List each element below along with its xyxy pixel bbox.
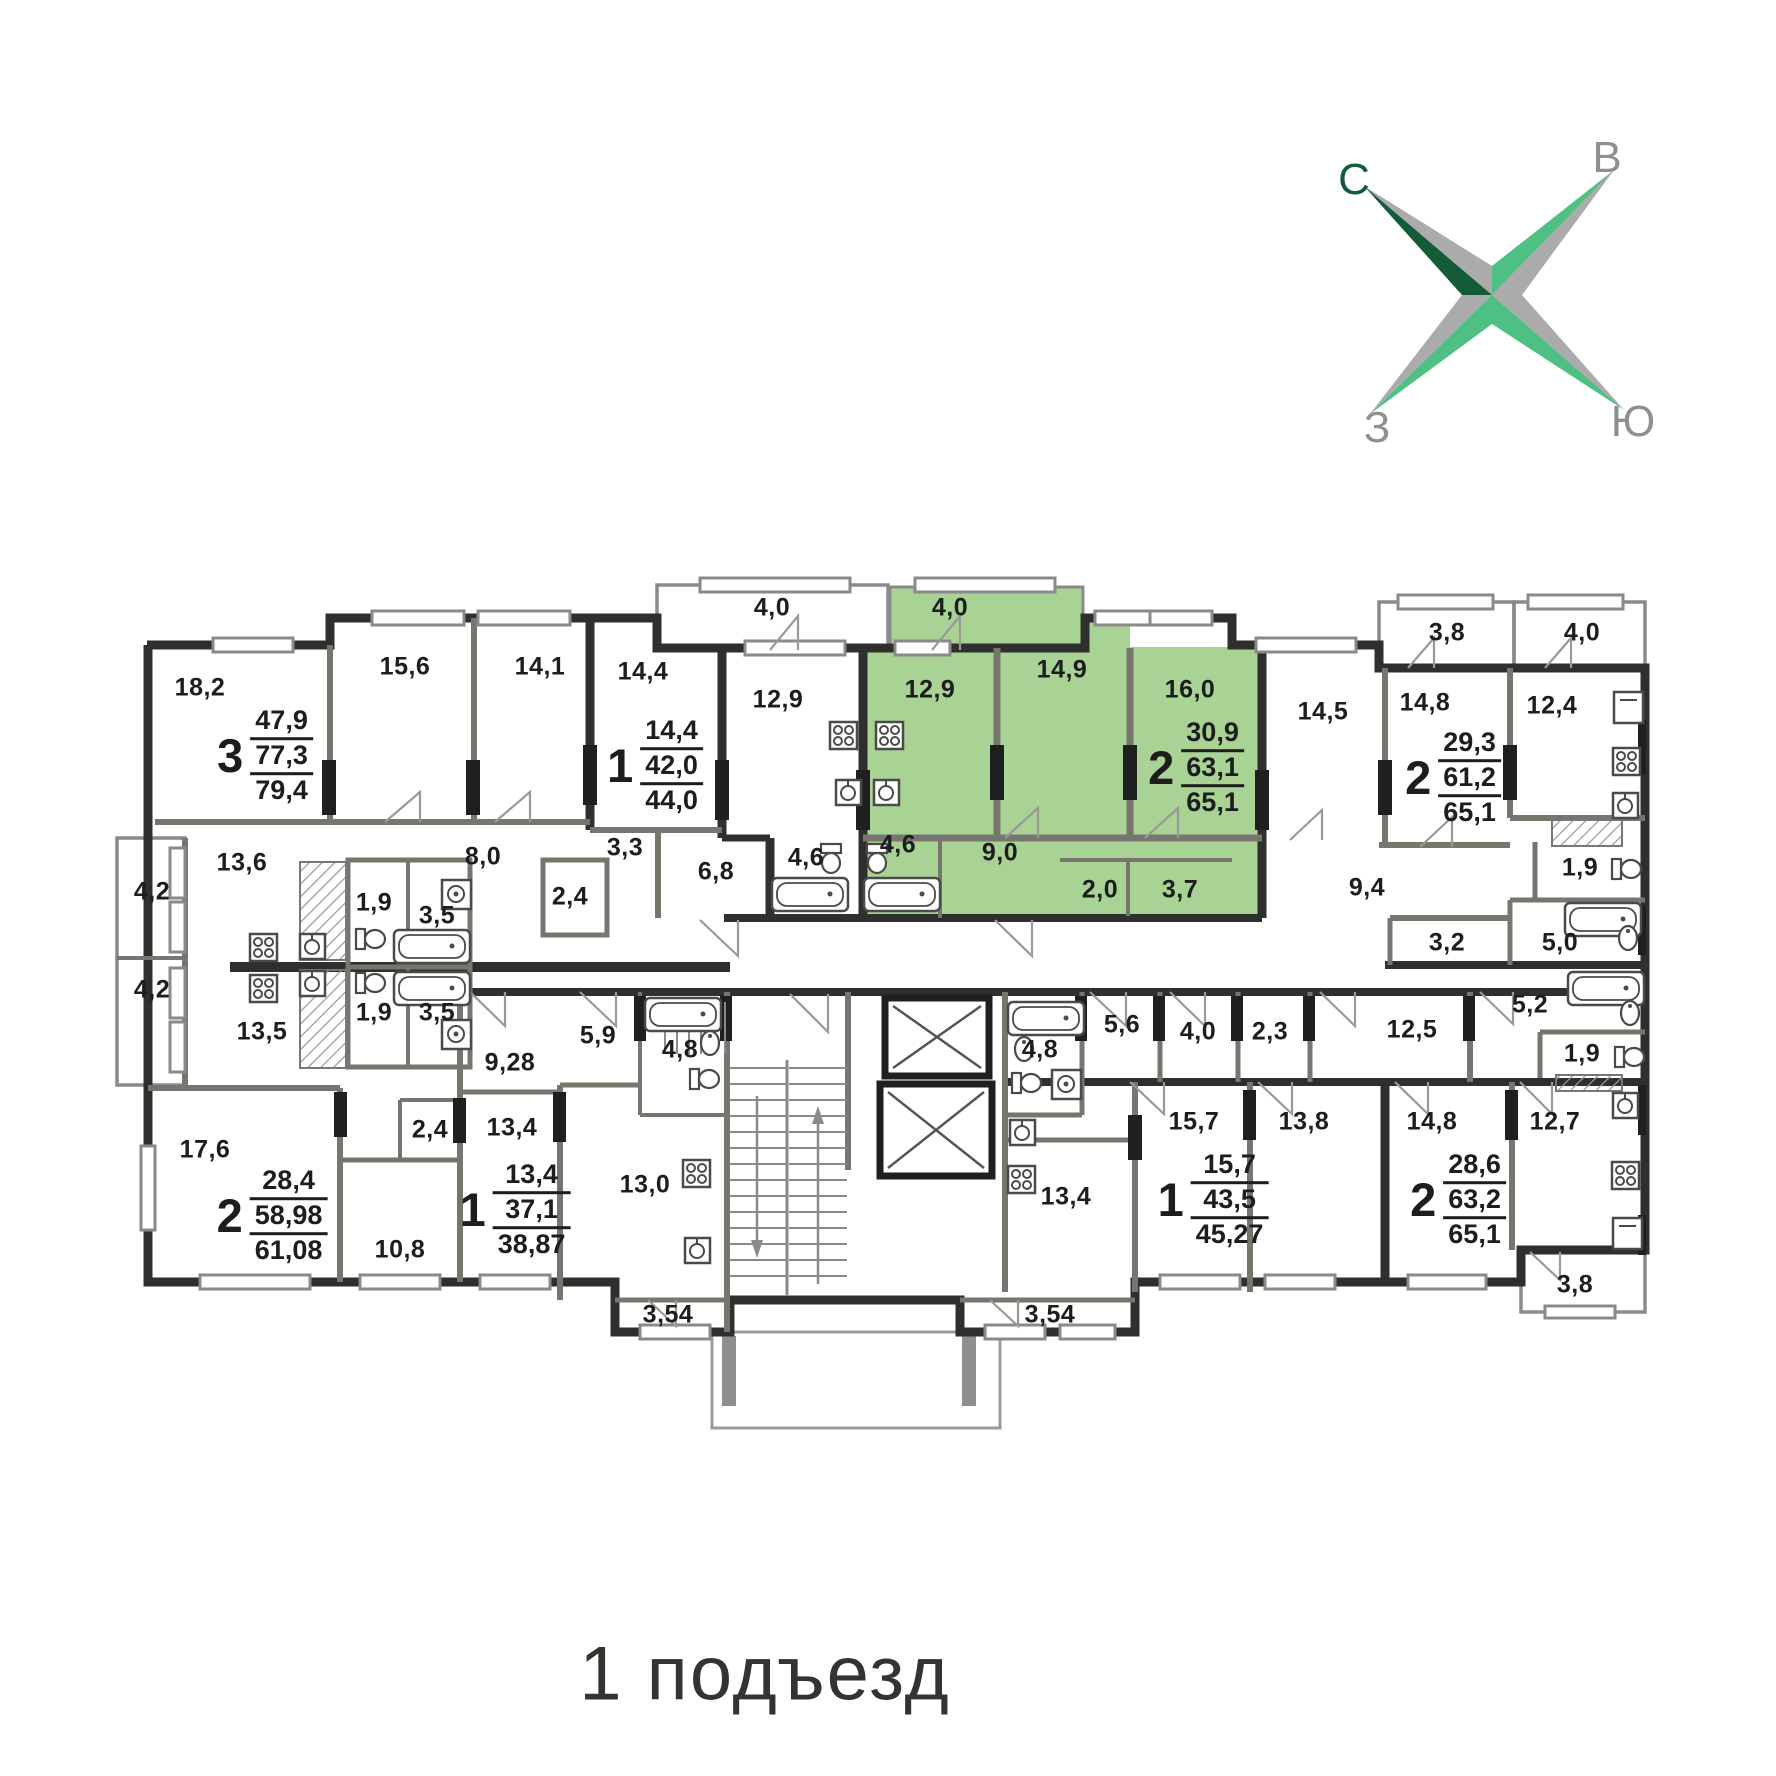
compass-east-label: В xyxy=(1592,133,1621,183)
living-area: 29,3 xyxy=(1438,727,1501,762)
room-area-label: 3,2 xyxy=(1429,929,1465,958)
apartment-area: 63,2 xyxy=(1443,1184,1506,1219)
apartment-summary: 1 13,437,138,87 xyxy=(460,1159,571,1261)
room-area-label: 14,8 xyxy=(1400,689,1451,718)
total-area: 44,0 xyxy=(640,785,703,817)
bathroom-sink-icon xyxy=(1621,1001,1639,1025)
room-area-label: 9,28 xyxy=(485,1049,536,1078)
room-area-label: 8,0 xyxy=(465,843,501,872)
room-area-label: 3,5 xyxy=(419,902,455,931)
total-area: 65,1 xyxy=(1438,797,1501,829)
room-area-label: 4,0 xyxy=(1180,1018,1216,1047)
stove-icon xyxy=(250,934,277,961)
apartment-summary: 2 28,458,9861,08 xyxy=(217,1165,328,1267)
entrance-porch xyxy=(712,1332,1000,1428)
room-area-label: 12,7 xyxy=(1530,1108,1581,1137)
room-area-label: 14,8 xyxy=(1407,1108,1458,1137)
sink-icon xyxy=(874,780,899,805)
bathtub-icon xyxy=(1008,1002,1084,1035)
room-area-label: 15,6 xyxy=(380,653,431,682)
toilet-icon xyxy=(356,929,385,949)
room-area-label: 14,5 xyxy=(1298,698,1349,727)
apartment-rooms-count: 2 xyxy=(217,1188,243,1243)
bathtub-icon xyxy=(1568,972,1644,1005)
apartment-summary: 1 15,743,545,27 xyxy=(1158,1149,1269,1251)
room-area-label: 4,2 xyxy=(134,878,170,907)
room-area-label: 4,6 xyxy=(880,831,916,860)
room-area-label: 12,4 xyxy=(1527,692,1578,721)
living-area: 13,4 xyxy=(493,1159,571,1194)
room-area-label: 14,1 xyxy=(515,653,566,682)
apartment-area: 61,2 xyxy=(1438,762,1501,797)
floor-plan-page: С В З Ю 18,2 15,6 14,1 14,4 4,0 12,9 4,0… xyxy=(0,0,1776,1776)
apartment-area: 42,0 xyxy=(640,750,703,785)
room-area-label: 2,0 xyxy=(1082,876,1118,905)
sink-icon xyxy=(300,934,325,959)
room-area-label: 13,5 xyxy=(237,1018,288,1047)
bathtub-icon xyxy=(394,930,470,963)
room-area-label: 3,3 xyxy=(607,834,643,863)
room-area-label: 1,9 xyxy=(356,889,392,918)
room-area-label: 5,9 xyxy=(580,1022,616,1051)
elevator-shafts xyxy=(880,998,992,1176)
room-area-label: 4,6 xyxy=(788,844,824,873)
sink-icon xyxy=(300,971,325,996)
room-area-label: 3,5 xyxy=(419,999,455,1028)
room-area-label: 4,8 xyxy=(1022,1036,1058,1065)
apartment-area: 63,1 xyxy=(1181,752,1244,787)
room-area-label: 14,4 xyxy=(618,658,669,687)
bathroom-sink-icon xyxy=(701,1031,719,1055)
total-area: 45,27 xyxy=(1191,1219,1269,1251)
bathroom-sink-icon xyxy=(1619,926,1637,950)
apartment-rooms-count: 2 xyxy=(1405,750,1431,805)
room-area-label: 3,8 xyxy=(1429,619,1465,648)
room-area-label: 4,0 xyxy=(1564,619,1600,648)
fridge-icon xyxy=(1613,1218,1642,1249)
room-area-label: 14,9 xyxy=(1037,656,1088,685)
apartment-area: 58,98 xyxy=(250,1200,328,1235)
stove-icon xyxy=(830,722,857,749)
room-area-label: 15,7 xyxy=(1169,1108,1220,1137)
room-area-label: 2,4 xyxy=(412,1116,448,1145)
room-area-label: 1,9 xyxy=(1562,854,1598,883)
fridge-icon xyxy=(1614,692,1643,723)
apartment-rooms-count: 3 xyxy=(217,728,243,783)
stove-icon xyxy=(250,975,277,1002)
room-area-label: 9,4 xyxy=(1349,874,1385,903)
stove-icon xyxy=(1612,1162,1639,1189)
room-area-label: 13,8 xyxy=(1279,1108,1330,1137)
compass-south-label: Ю xyxy=(1611,397,1655,447)
room-area-label: 12,5 xyxy=(1387,1016,1438,1045)
washer-icon xyxy=(1052,1070,1081,1099)
bathtub-icon xyxy=(772,878,848,911)
stove-icon xyxy=(683,1160,710,1187)
room-area-label: 2,3 xyxy=(1252,1018,1288,1047)
apartment-rooms-count: 1 xyxy=(607,738,633,793)
apartment-rooms-count: 1 xyxy=(1158,1172,1184,1227)
room-area-label: 3,54 xyxy=(1025,1301,1076,1330)
room-area-label: 3,8 xyxy=(1557,1271,1593,1300)
stove-icon xyxy=(1008,1166,1035,1193)
compass-north-label: С xyxy=(1338,155,1370,205)
living-area: 28,6 xyxy=(1443,1149,1506,1184)
living-area: 30,9 xyxy=(1181,717,1244,752)
compass-rose-icon xyxy=(1364,170,1624,414)
room-area-label: 5,0 xyxy=(1542,929,1578,958)
sink-icon xyxy=(1010,1120,1035,1145)
living-area: 15,7 xyxy=(1191,1149,1269,1184)
total-area: 65,1 xyxy=(1181,787,1244,819)
compass-west-label: З xyxy=(1364,403,1391,453)
room-area-label: 13,4 xyxy=(1041,1183,1092,1212)
apartment-summary: 3 47,977,379,4 xyxy=(217,705,313,807)
room-area-label: 16,0 xyxy=(1165,676,1216,705)
apartment-area: 37,1 xyxy=(493,1194,571,1229)
room-area-label: 3,7 xyxy=(1162,876,1198,905)
apartment-summary: 2 28,663,265,1 xyxy=(1410,1149,1506,1251)
bathtub-icon xyxy=(864,878,940,911)
bathtub-icon xyxy=(645,998,721,1031)
apartment-summary-selected: 2 30,963,165,1 xyxy=(1148,717,1244,819)
room-area-label: 4,0 xyxy=(754,594,790,623)
apartment-rooms-count: 1 xyxy=(460,1182,486,1237)
room-area-label: 4,2 xyxy=(134,976,170,1005)
living-area: 14,4 xyxy=(640,715,703,750)
apartment-summary: 2 29,361,265,1 xyxy=(1405,727,1501,829)
floor-plan-drawing xyxy=(0,0,1776,1776)
room-area-label: 1,9 xyxy=(356,999,392,1028)
room-area-label: 9,0 xyxy=(982,839,1018,868)
room-area-label: 13,0 xyxy=(620,1171,671,1200)
room-area-label: 3,54 xyxy=(643,1301,694,1330)
room-area-label: 10,8 xyxy=(375,1236,426,1265)
room-area-label: 2,4 xyxy=(552,883,588,912)
total-area: 65,1 xyxy=(1443,1219,1506,1251)
room-area-label: 17,6 xyxy=(180,1136,231,1165)
apartment-area: 77,3 xyxy=(250,740,313,775)
apartment-area: 43,5 xyxy=(1191,1184,1269,1219)
toilet-icon xyxy=(690,1069,719,1089)
room-area-label: 4,8 xyxy=(662,1036,698,1065)
apartment-rooms-count: 2 xyxy=(1148,740,1174,795)
room-area-label: 13,4 xyxy=(487,1114,538,1143)
living-area: 47,9 xyxy=(250,705,313,740)
room-area-label: 12,9 xyxy=(753,686,804,715)
room-area-label: 13,6 xyxy=(217,849,268,878)
toilet-icon xyxy=(356,973,385,993)
room-area-label: 18,2 xyxy=(175,674,226,703)
sink-icon xyxy=(1613,1093,1638,1118)
entrance-caption: 1 подъезд xyxy=(579,1631,950,1718)
total-area: 38,87 xyxy=(493,1229,571,1261)
total-area: 61,08 xyxy=(250,1235,328,1267)
room-area-label: 5,6 xyxy=(1104,1011,1140,1040)
room-area-label: 5,2 xyxy=(1512,991,1548,1020)
room-area-label: 12,9 xyxy=(905,676,956,705)
sink-icon xyxy=(836,780,861,805)
sink-icon xyxy=(685,1238,710,1263)
apartment-summary: 1 14,442,044,0 xyxy=(607,715,703,817)
room-area-label: 4,0 xyxy=(932,594,968,623)
toilet-icon xyxy=(1612,859,1641,879)
room-area-label: 1,9 xyxy=(1564,1040,1600,1069)
total-area: 79,4 xyxy=(250,775,313,807)
room-area-label: 6,8 xyxy=(698,858,734,887)
sink-icon xyxy=(1613,793,1638,818)
stove-icon xyxy=(876,722,903,749)
toilet-icon xyxy=(1012,1073,1041,1093)
stove-icon xyxy=(1613,748,1640,775)
toilet-icon xyxy=(1615,1047,1644,1067)
apartment-rooms-count: 2 xyxy=(1410,1172,1436,1227)
living-area: 28,4 xyxy=(250,1165,328,1200)
